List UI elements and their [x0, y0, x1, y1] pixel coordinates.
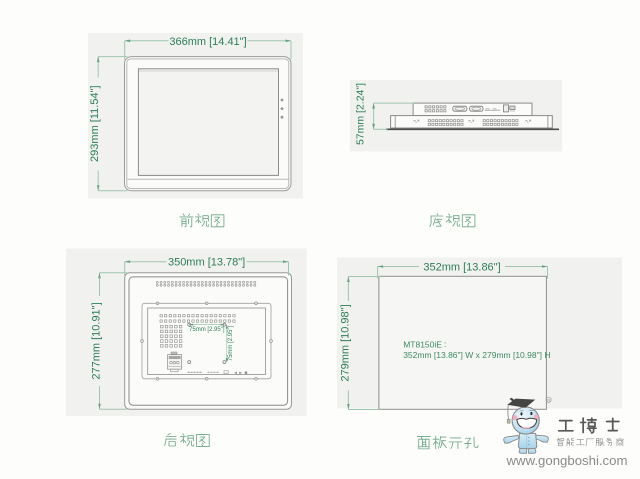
svg-text:293mm [11.54"]: 293mm [11.54"]: [89, 85, 101, 161]
svg-text:MT8150iE: MT8150iE: [403, 340, 442, 350]
svg-text:75mm [2.95"]: 75mm [2.95"]: [189, 327, 225, 333]
svg-text:75mm [2.95"]: 75mm [2.95"]: [228, 325, 234, 361]
svg-text:350mm [13.78"]: 350mm [13.78"]: [168, 257, 245, 269]
svg-text:352mm [13.86"]: 352mm [13.86"]: [423, 262, 500, 274]
svg-text::: :: [444, 339, 446, 349]
svg-text:366mm [14.41"]: 366mm [14.41"]: [169, 36, 246, 48]
svg-text:www.gongboshi.com: www.gongboshi.com: [506, 453, 628, 468]
svg-text:57mm [2.24"]: 57mm [2.24"]: [355, 83, 367, 145]
svg-text:277mm [10.91"]: 277mm [10.91"]: [91, 302, 103, 379]
svg-text:R: R: [547, 398, 550, 403]
svg-text:279mm [10.98"]: 279mm [10.98"]: [339, 304, 351, 381]
svg-text:352mm [13.86"] W x 279mm [10.9: 352mm [13.86"] W x 279mm [10.98"] H: [403, 350, 550, 360]
